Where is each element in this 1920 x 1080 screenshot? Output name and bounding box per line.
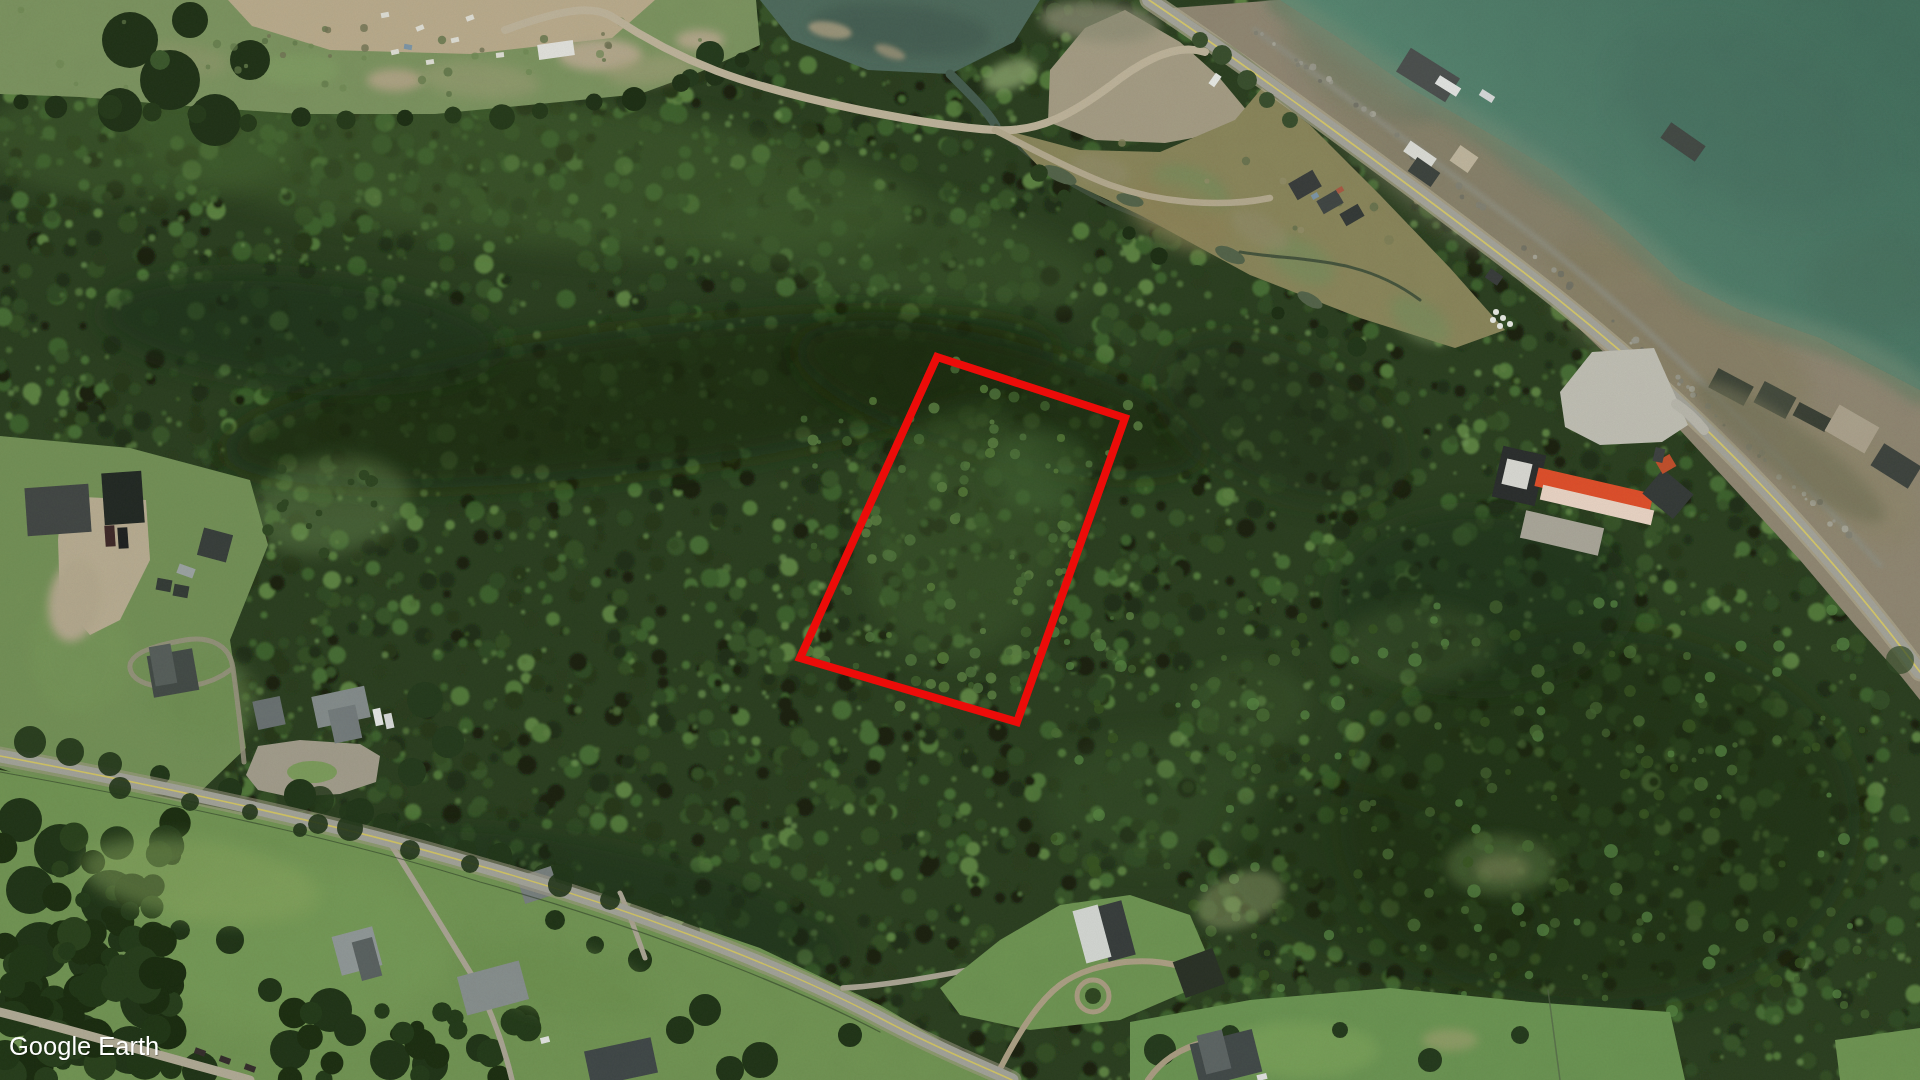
svg-text:Google Earth: Google Earth [9, 1032, 159, 1060]
